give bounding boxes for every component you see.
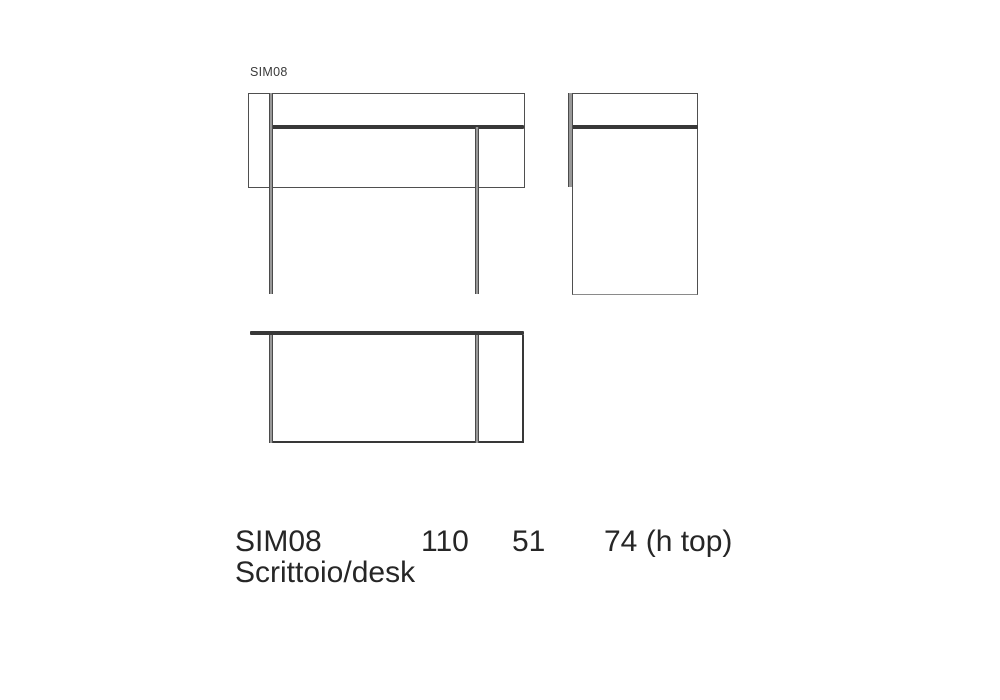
front-view-right-leg <box>475 127 479 294</box>
top-view-left-leg-line <box>269 335 273 443</box>
side-view-back-panel-edge <box>568 93 573 187</box>
spec-height-value: 74 (h top) <box>604 527 732 557</box>
side-view-desktop-line <box>572 125 698 129</box>
front-view-back-panel-outline <box>248 93 525 188</box>
front-view-left-leg <box>269 93 273 294</box>
front-view-desktop-line <box>270 125 524 129</box>
spec-width-value: 110 <box>421 527 469 557</box>
technical-drawing-sheet: SIM08 SIM08 110 51 74 (h top) Scrittoio/… <box>0 0 1000 700</box>
top-view-right-leg-line <box>475 335 479 443</box>
spec-description: Scrittoio/desk <box>235 558 415 588</box>
top-view-surface-outline <box>270 335 524 443</box>
drawing-code-label: SIM08 <box>250 65 288 79</box>
spec-depth-value: 51 <box>512 527 545 557</box>
spec-model-code: SIM08 <box>235 527 322 557</box>
side-view-outline <box>572 93 698 295</box>
